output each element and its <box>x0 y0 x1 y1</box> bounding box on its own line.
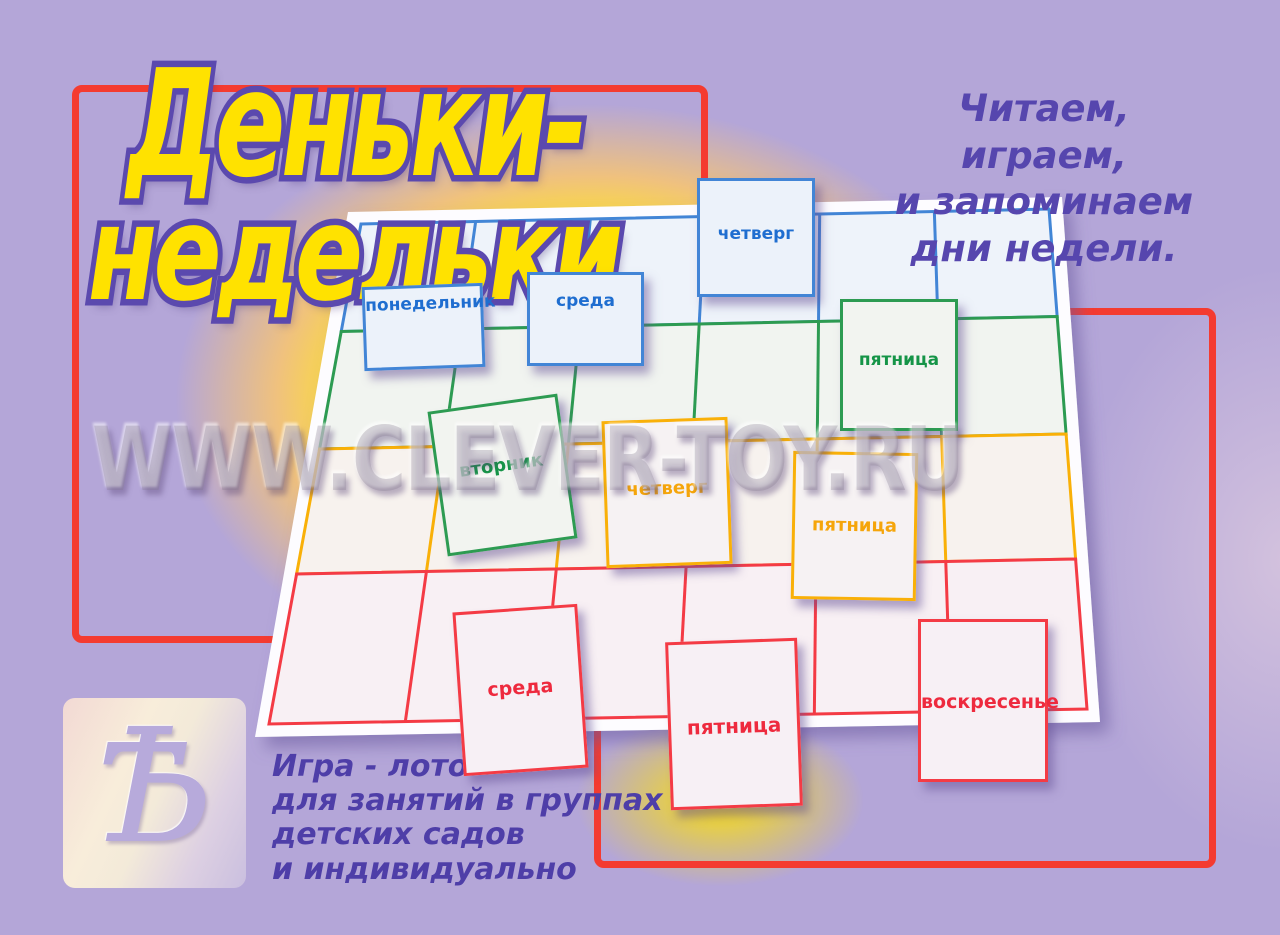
card-label: вторник <box>438 447 565 485</box>
publisher-logo-glyph: Ѣ <box>94 708 214 866</box>
card-label: пятница <box>843 350 955 370</box>
card-sreda-red: среда <box>452 604 588 776</box>
card-label: пятница <box>795 514 914 537</box>
card-sreda-blue: среда <box>527 272 644 366</box>
publisher-logo: Ѣ <box>63 698 246 888</box>
description-line-2: для занятий в группах <box>272 784 663 818</box>
card-label: пятница <box>671 712 798 740</box>
title-line-1: Деньки- <box>127 50 583 198</box>
card-voskresene-red: воскресенье <box>918 619 1048 782</box>
card-pyatnitsa-yellow: пятница <box>791 451 919 601</box>
card-chetverg-blue: четверг <box>697 178 815 297</box>
tagline: Читаем, играем, и запоминаем дни недели. <box>884 86 1204 272</box>
card-label: понедельник <box>365 292 481 316</box>
card-chetverg-yellow: четверг <box>601 417 732 568</box>
card-label: среда <box>530 291 641 311</box>
card-label: четверг <box>700 224 812 244</box>
description-line-3: детских садов <box>272 818 663 852</box>
tagline-line-3: дни недели. <box>884 226 1204 273</box>
game-box-cover: Деньки- недельки Читаем, играем, и запом… <box>0 0 1280 935</box>
card-vtornik-green: вторник <box>427 394 577 557</box>
tagline-line-2: и запоминаем <box>884 179 1204 226</box>
card-label: воскресенье <box>921 691 1045 713</box>
tagline-line-1: Читаем, играем, <box>884 86 1204 179</box>
card-label: четверг <box>607 476 728 501</box>
card-ponedelnik-blue: понедельник <box>362 283 486 371</box>
card-pyatnitsa-green: пятница <box>840 299 958 431</box>
description-line-4: и индивидуально <box>272 853 663 887</box>
card-label: среда <box>460 673 580 703</box>
card-pyatnitsa-red: пятница <box>665 638 803 811</box>
